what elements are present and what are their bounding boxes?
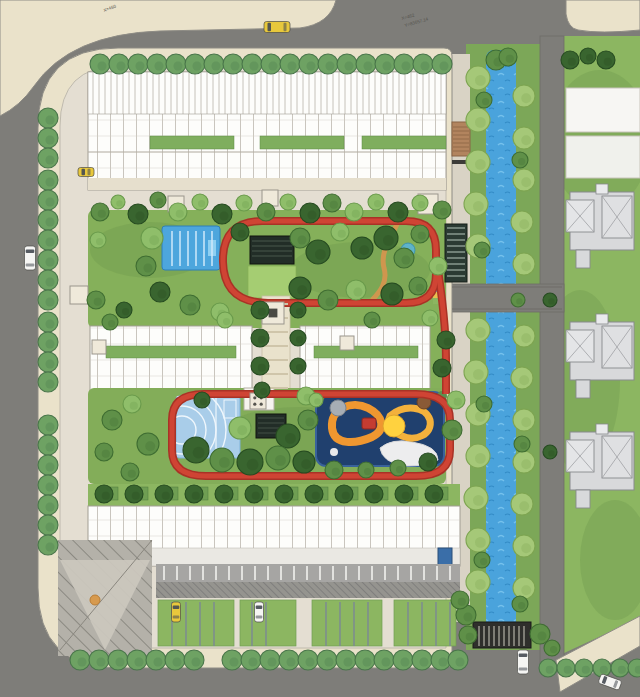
car-west-road-icon: [25, 246, 36, 270]
tree-shade: [192, 658, 201, 667]
taxi-top-road-icon: [264, 22, 290, 33]
tree-shade: [444, 338, 452, 346]
tree-shade: [520, 442, 527, 449]
neighbor-building-white-2: [566, 136, 640, 178]
tree-shade: [519, 501, 529, 511]
tree-shade: [237, 425, 247, 435]
garden-pad: [92, 340, 106, 354]
parking-canopy-hatch: [156, 582, 460, 598]
tree-shade: [102, 450, 110, 458]
tree-shade: [192, 492, 200, 500]
play-equipment-red: [362, 418, 376, 429]
site-plan-svg: X=462 Y=83657.14 X=460: [0, 0, 640, 697]
tree-shade: [158, 290, 167, 299]
tree-shade: [521, 135, 531, 145]
garden-pad: [70, 286, 88, 304]
tree-shade: [564, 666, 572, 674]
tree-shade: [108, 320, 115, 327]
tree-shade: [46, 463, 55, 472]
tree-shade: [260, 388, 267, 395]
tree-shade: [330, 201, 338, 209]
tree-shade: [212, 62, 221, 71]
tree-shade: [473, 369, 484, 380]
tree-shade: [521, 261, 531, 271]
play-dot: [330, 448, 338, 456]
tree-shade: [521, 417, 531, 427]
tree-shade: [116, 200, 122, 206]
tree-shade: [193, 447, 205, 459]
tree-shade: [46, 116, 55, 125]
tree-shade: [550, 646, 557, 653]
building-front-walk: [88, 178, 446, 190]
tree-shade: [220, 212, 229, 221]
tree-group-street-bottom: [70, 650, 468, 670]
tree-shade: [46, 380, 55, 389]
tree-shade: [298, 236, 307, 245]
tree-shade: [46, 483, 55, 492]
tree-shade: [382, 658, 391, 667]
tree-shade: [136, 62, 145, 71]
tree-shade: [418, 232, 426, 240]
tree-shade: [518, 158, 525, 165]
tree-shade: [342, 492, 350, 500]
car-south-road-icon: [518, 650, 529, 674]
tree-shade: [110, 418, 119, 427]
tree-shade: [252, 492, 260, 500]
tree-shade: [306, 418, 315, 427]
tree-shade: [546, 666, 554, 674]
tree-shade: [604, 58, 612, 66]
tree-shade: [97, 658, 106, 667]
tree-shade: [475, 453, 486, 464]
tree-shade: [519, 219, 529, 229]
tree-shade: [285, 433, 296, 444]
tree-shade: [296, 336, 303, 343]
tree-shade: [548, 450, 554, 456]
tree-shade: [98, 62, 107, 71]
tree-shade: [78, 658, 87, 667]
tree-shade: [222, 492, 230, 500]
tree-shade: [473, 201, 484, 212]
tree-shade: [421, 62, 430, 71]
tree-shade: [46, 320, 55, 329]
tree-shade: [46, 218, 55, 227]
tree-shade: [475, 159, 486, 170]
tree-shade: [389, 291, 399, 301]
tree-shade: [402, 62, 411, 71]
tree-shade: [296, 308, 303, 315]
tree-shade: [326, 62, 335, 71]
tree-shade: [46, 360, 55, 369]
tree-shade: [568, 58, 576, 66]
tree-shade: [325, 658, 334, 667]
tree-shade: [475, 75, 486, 86]
tree-shade: [396, 210, 405, 219]
tree-shade: [314, 398, 320, 404]
tree-shade: [155, 62, 164, 71]
tree-shade: [46, 278, 55, 287]
tree-shade: [46, 298, 55, 307]
parked-car-northwest-icon: [78, 168, 94, 177]
pavilion-lawn: [248, 266, 296, 298]
tree-shade: [538, 632, 547, 641]
tree-shade: [238, 230, 246, 238]
tree-shade: [418, 201, 425, 208]
tree-shade: [586, 54, 593, 61]
tree-shade: [521, 93, 531, 103]
tree-shade: [364, 468, 371, 475]
tree-shade: [249, 658, 258, 667]
tree-shade: [193, 62, 202, 71]
tree-shade: [117, 62, 126, 71]
tree-shade: [363, 658, 372, 667]
site-plan-stage: X=462 Y=83657.14 X=460: [0, 0, 640, 697]
tree-shade: [475, 579, 486, 590]
play-mound-yellow: [383, 415, 405, 437]
tree-shade: [258, 336, 266, 344]
tree-shade: [548, 298, 554, 304]
tree-group-street-top: [90, 54, 452, 74]
tree-shade: [315, 249, 326, 260]
tree-shade: [440, 366, 448, 374]
east-road: [540, 36, 564, 666]
tree-shade: [364, 62, 373, 71]
tree-shade: [450, 428, 459, 437]
tree-shade: [326, 298, 335, 307]
tree-shade: [401, 658, 410, 667]
tree-shade: [258, 308, 266, 316]
tree-shade: [198, 200, 205, 207]
tree-shade: [269, 62, 278, 71]
tree-shade: [264, 210, 272, 218]
tree-shade: [440, 208, 448, 216]
tree-shade: [416, 284, 424, 292]
middle-building-west-units: [90, 326, 252, 394]
tree-shade: [288, 62, 297, 71]
tree-shade: [338, 230, 346, 238]
tree-shade: [156, 198, 163, 205]
tree-shade: [475, 411, 486, 422]
tree-shade: [383, 62, 392, 71]
tree-shade: [200, 398, 207, 405]
tree-shade: [301, 459, 311, 469]
north-building-block: [88, 72, 446, 190]
river-texture: [486, 50, 516, 632]
tree-shade: [188, 303, 197, 312]
middle-building-east-units: [300, 326, 430, 394]
tree-shade: [268, 658, 277, 667]
tree-shade: [440, 62, 449, 71]
tree-shade: [122, 308, 129, 315]
tree-shade: [420, 658, 429, 667]
tree-shade: [250, 62, 259, 71]
tree-shade: [475, 327, 486, 338]
sidewalk-top-right: [566, 0, 640, 32]
parking-aisle: [156, 564, 460, 582]
tree-shade: [312, 492, 320, 500]
parked-car-south-1-icon: [172, 602, 181, 622]
tree-shade: [432, 492, 440, 500]
tree-shade: [102, 492, 110, 500]
tree-shade: [521, 543, 531, 553]
tree-shade: [396, 466, 403, 473]
tree-shade: [383, 235, 394, 246]
tree-group-street-bottom-right: [539, 659, 640, 677]
pergola: [445, 224, 467, 282]
green-roof-strip: [362, 136, 446, 149]
tree-shade: [149, 235, 159, 245]
tree-shade: [46, 238, 55, 247]
tree-shade: [282, 492, 290, 500]
tree-shade: [332, 468, 340, 476]
tree-shade: [296, 364, 303, 371]
tree-shade: [297, 285, 307, 295]
tree-shade: [428, 316, 435, 323]
tree-shade: [286, 200, 293, 207]
play-dome-gray: [330, 400, 346, 416]
tree-shade: [136, 212, 145, 221]
tree-shade: [128, 470, 136, 478]
tree-shade: [516, 298, 522, 304]
tree-shade: [230, 658, 239, 667]
tree-shade: [482, 402, 489, 409]
tree-shade: [352, 210, 360, 218]
green-roof-strip: [260, 136, 344, 149]
tree-shade: [454, 398, 462, 406]
tree-shade: [456, 658, 465, 667]
parked-car-south-2-icon: [255, 602, 264, 622]
tree-shade: [521, 333, 531, 343]
tree-shade: [144, 264, 153, 273]
tree-shade: [521, 585, 531, 595]
tree-shade: [46, 423, 55, 432]
tree-shade: [345, 62, 354, 71]
tree-shade: [145, 441, 155, 451]
tree-shade: [582, 666, 590, 674]
garden-pad: [340, 336, 354, 350]
tree-shade: [519, 375, 529, 385]
tree-shade: [46, 503, 55, 512]
tree-shade: [135, 658, 144, 667]
tree-shade: [402, 256, 411, 265]
green-roof-strip: [150, 136, 234, 149]
tree-shade: [223, 318, 230, 325]
tree-shade: [247, 459, 259, 471]
tree-shade: [94, 298, 102, 306]
tree-shade: [354, 288, 363, 297]
tree-shade: [308, 211, 317, 220]
tree-shade: [306, 658, 315, 667]
tree-shade: [231, 62, 240, 71]
tree-shade: [96, 238, 103, 245]
tree-shade: [618, 666, 626, 674]
tree-shade: [600, 666, 608, 674]
tree-shade: [46, 178, 55, 187]
tree-shade: [475, 117, 486, 128]
corner-plaza: [58, 540, 152, 656]
tree-shade: [46, 543, 55, 552]
tree-shade: [275, 455, 286, 466]
tree-shade: [344, 658, 353, 667]
tree-shade: [46, 523, 55, 532]
tree-shade: [466, 633, 474, 641]
tree-shade: [518, 602, 525, 609]
tree-shade: [307, 62, 316, 71]
tree-shade: [464, 613, 473, 622]
lines-deck-planks: [453, 127, 469, 151]
tree-shade: [521, 459, 531, 469]
tree-shade: [473, 495, 484, 506]
tree-shade: [439, 658, 448, 667]
commercial-podium: [88, 72, 446, 114]
tree-shade: [359, 245, 369, 255]
tree-shade: [402, 492, 410, 500]
tree-shade: [46, 258, 55, 267]
tree-shade: [98, 210, 106, 218]
tree-shade: [374, 200, 381, 207]
tree-shade: [132, 492, 140, 500]
garden-pavilion: [250, 236, 294, 264]
tree-shade: [506, 55, 514, 63]
tree-shade: [46, 443, 55, 452]
tree-shade: [475, 537, 486, 548]
green-roof-strip: [314, 346, 418, 358]
tree-shade: [130, 402, 138, 410]
tree-shade: [521, 177, 531, 187]
tree-shade: [372, 492, 380, 500]
tree-shade: [46, 136, 55, 145]
tree-shade: [46, 340, 55, 349]
tree-shade: [46, 156, 55, 165]
tree-shade: [436, 264, 444, 272]
tree-shade: [480, 558, 487, 565]
tree-shade: [370, 318, 377, 325]
tree-shade: [176, 210, 184, 218]
tree-shade: [258, 364, 266, 372]
neighbor-building-white-1: [566, 88, 640, 132]
tree-shade: [480, 248, 487, 255]
tree-shade: [154, 658, 163, 667]
tree-shade: [426, 460, 434, 468]
tree-shade: [173, 658, 182, 667]
south-bridge: [473, 622, 531, 648]
tree-shade: [219, 457, 230, 468]
plaza-feature: [90, 595, 100, 605]
tree-shade: [162, 492, 170, 500]
tree-shade: [458, 598, 466, 606]
tree-shade: [46, 198, 55, 207]
tree-shade: [482, 98, 489, 105]
tree-shade: [174, 62, 183, 71]
tree-shade: [116, 658, 125, 667]
tree-shade: [242, 201, 249, 208]
tree-shade: [287, 658, 296, 667]
green-roof-strip: [106, 346, 236, 358]
